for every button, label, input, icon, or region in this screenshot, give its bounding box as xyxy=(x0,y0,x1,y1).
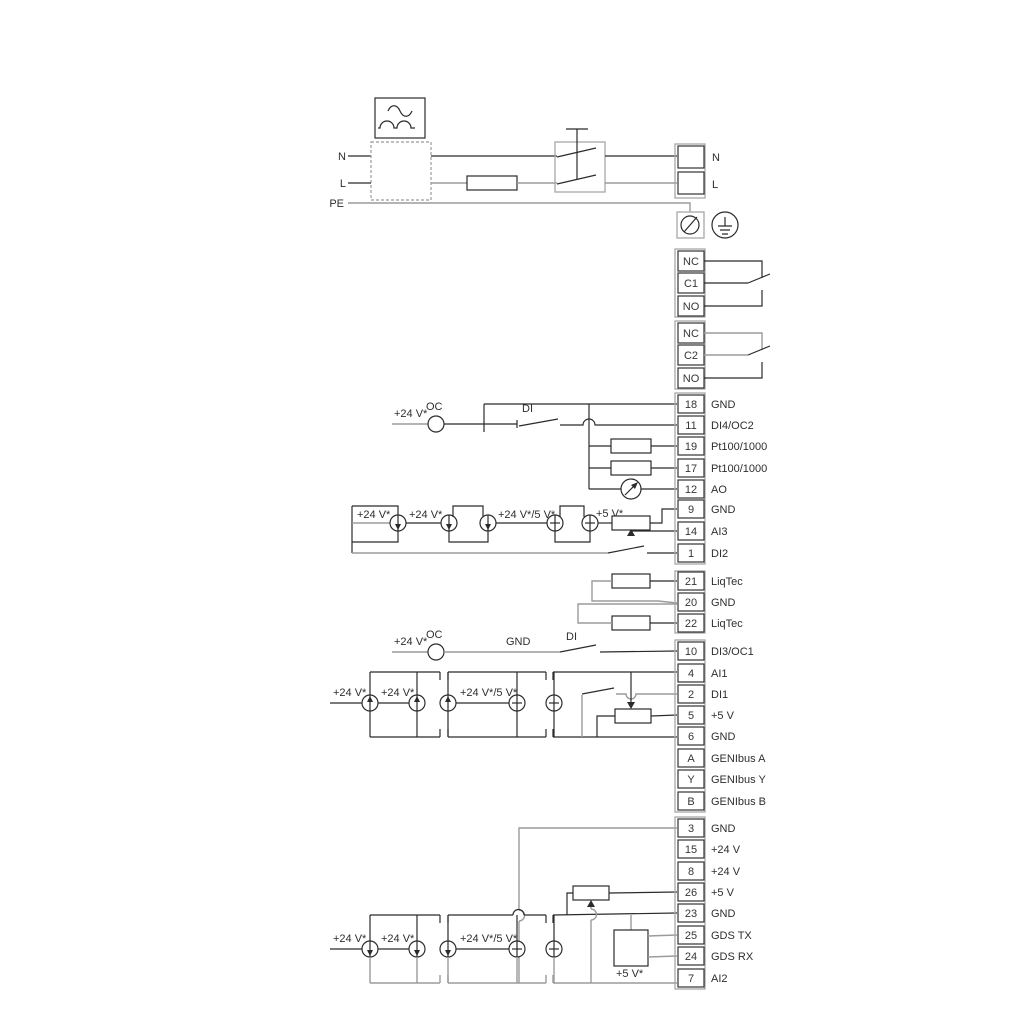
di3-switch-blade xyxy=(560,645,596,652)
terminal-number: 12 xyxy=(685,484,697,496)
current-source-down-icon xyxy=(441,515,457,531)
relay1-contact-blade xyxy=(748,274,770,283)
terminal-number: 22 xyxy=(685,618,697,630)
ai3-di2-circuit: +24 V* +24 V* +24 V*/5 V* +5 V* xyxy=(352,506,677,553)
terminal-row: 25GDS TX xyxy=(678,926,752,944)
current-source-down-icon xyxy=(440,941,456,957)
wiring-diagram-page: N L PE N L NC xyxy=(0,0,1024,1024)
terminal-row: 19Pt100/1000 xyxy=(678,437,767,455)
main-switch-box xyxy=(555,142,605,192)
l-left-label: L xyxy=(340,178,346,190)
terminal-label: AI3 xyxy=(711,526,728,538)
terminal-number: 1 xyxy=(688,548,694,560)
terminal-row: YGENIbus Y xyxy=(678,770,766,788)
return-loop xyxy=(449,531,488,542)
di4-pt100-ao-circuit: +24 V* OC DI xyxy=(392,401,677,499)
di1-switch-blade xyxy=(582,688,614,694)
terminal-number: 19 xyxy=(685,441,697,453)
terminal-row: 7AI2 xyxy=(678,969,728,987)
liqtec-circuit xyxy=(578,574,677,630)
terminal-label: +5 V xyxy=(711,710,735,722)
relay1-c1-label: C1 xyxy=(684,278,698,290)
wiper-wire-with-hop xyxy=(591,907,597,983)
oc-label: OC xyxy=(426,401,443,413)
oc-label: OC xyxy=(426,629,443,641)
terminal-l-cell xyxy=(678,172,704,194)
power-section: N L PE N L xyxy=(329,98,738,238)
terminal-number: 6 xyxy=(688,731,694,743)
liqtec-resistor-1 xyxy=(612,574,650,588)
wire-to-5v xyxy=(609,892,677,893)
terminal-label: GDS RX xyxy=(711,951,754,963)
v24-label: +24 V* xyxy=(394,636,428,648)
wire xyxy=(651,715,677,716)
relay2-section: NC C2 NO xyxy=(675,321,770,389)
v24-label: +24 V* xyxy=(381,933,415,945)
di4-wire-with-hop xyxy=(560,419,677,425)
pot-return-wire xyxy=(597,716,615,737)
terminal-label: GENIbus B xyxy=(711,796,766,808)
voltage-source-icon xyxy=(509,941,525,957)
terminal-row: 26+5 V xyxy=(678,883,735,901)
wiper-arrow-up xyxy=(587,900,595,907)
terminal-label: AI1 xyxy=(711,668,728,680)
mains-filter-box xyxy=(375,98,425,138)
terminal-row: 20GND xyxy=(678,593,736,611)
terminal-strips: 18GND 11DI4/OC2 19Pt100/1000 17Pt100/100… xyxy=(675,393,767,989)
bottom-stubs xyxy=(370,711,554,737)
terminal-label: Pt100/1000 xyxy=(711,463,767,475)
v24-v5-label: +24 V*/5 V* xyxy=(460,687,518,699)
terminal-label: GENIbus Y xyxy=(711,774,766,786)
pe-wire xyxy=(348,203,690,212)
gds-tx-wire xyxy=(648,935,677,936)
terminal-row: 6GND xyxy=(678,727,736,745)
di3-circuit: +24 V* OC GND DI xyxy=(392,629,677,660)
current-source-down-icon xyxy=(409,941,425,957)
terminal-row: 17Pt100/1000 xyxy=(678,459,767,477)
v24-label: +24 V* xyxy=(409,509,443,521)
terminal-row: 8+24 V xyxy=(678,862,741,880)
current-source-up-icon xyxy=(362,695,378,711)
terminal-number: 10 xyxy=(685,646,697,658)
terminal-label: GND xyxy=(711,399,736,411)
current-source-down-icon xyxy=(390,515,406,531)
relay1-no-wire xyxy=(704,290,762,306)
relay2-c2-label: C2 xyxy=(684,350,698,362)
gds-module-box xyxy=(614,930,648,966)
current-source-down-icon xyxy=(362,941,378,957)
terminal-row: 2DI1 xyxy=(678,685,728,703)
terminal-label: GND xyxy=(711,597,736,609)
di-label: DI xyxy=(566,631,577,643)
terminal-label: DI1 xyxy=(711,689,728,701)
terminal-label: AO xyxy=(711,484,727,496)
terminal-row: 11DI4/OC2 xyxy=(678,416,754,434)
gnd-bottom-rail xyxy=(370,729,677,737)
terminal-number: 3 xyxy=(688,823,694,835)
pt100-resistor-2 xyxy=(611,461,651,475)
terminal-label: GND xyxy=(711,823,736,835)
ai1-di1-circuit: +24 V* +24 V* +24 V*/5 V* xyxy=(330,672,677,737)
terminal-row: 24GDS RX xyxy=(678,947,754,965)
terminal-number: 15 xyxy=(685,844,697,856)
terminal-number: 7 xyxy=(688,973,694,985)
terminal-number: 21 xyxy=(685,576,697,588)
relay1-section: NC C1 NO xyxy=(675,249,770,317)
terminal-label: +5 V xyxy=(711,887,735,899)
terminal-number: 11 xyxy=(685,420,696,432)
n-left-label: N xyxy=(338,151,346,163)
terminal-row: BGENIbus B xyxy=(678,792,766,810)
voltage-source-icon xyxy=(547,515,563,531)
relay2-no-label: NO xyxy=(683,373,700,385)
current-source-up-icon xyxy=(440,695,456,711)
terminal-label: GENIbus A xyxy=(711,753,766,765)
terminal-label: LiqTec xyxy=(711,576,743,588)
terminal-number: 20 xyxy=(685,597,697,609)
terminal-number: A xyxy=(687,753,695,765)
v24-v5-label: +24 V*/5 V* xyxy=(498,509,556,521)
terminal-number: Y xyxy=(687,774,695,786)
terminal-row: 5+5 V xyxy=(678,706,735,724)
terminal-number: 2 xyxy=(688,689,694,701)
terminal-number: 24 xyxy=(685,951,697,963)
terminal-row: 23GND xyxy=(678,904,736,922)
potentiometer xyxy=(573,886,609,900)
dashed-module-box xyxy=(371,142,431,200)
terminal-row: 4AI1 xyxy=(678,664,728,682)
fuse xyxy=(467,176,517,190)
l-right-label: L xyxy=(712,179,718,191)
terminal-number: 26 xyxy=(685,887,697,899)
voltage-source-icon xyxy=(509,695,525,711)
liqtec-resistor-2 xyxy=(612,616,650,630)
voltage-source-icon xyxy=(546,941,562,957)
terminal-number: 23 xyxy=(685,908,697,920)
terminal-label: DI3/OC1 xyxy=(711,646,754,658)
relay1-nc-wire xyxy=(704,261,762,278)
relay2-contact-blade xyxy=(748,346,770,355)
terminal-label: GND xyxy=(711,731,736,743)
terminal-row: 3GND xyxy=(678,819,736,837)
terminal-label: GND xyxy=(711,504,736,516)
return-wire xyxy=(352,531,398,542)
relay1-nc-label: NC xyxy=(683,256,699,268)
v24-label: +24 V* xyxy=(333,933,367,945)
relay2-no-wire xyxy=(704,362,762,378)
wiper-arrow-down xyxy=(627,702,635,709)
relay2-nc-label: NC xyxy=(683,328,699,340)
current-source-down-icon xyxy=(480,515,496,531)
bracket xyxy=(453,506,483,517)
terminal-number: 14 xyxy=(685,526,697,538)
terminal-label: GDS TX xyxy=(711,930,752,942)
v24-label: +24 V* xyxy=(357,509,391,521)
terminal-n-cell xyxy=(678,146,704,168)
v24-label: +24 V* xyxy=(394,408,428,420)
terminal-label: +24 V xyxy=(711,866,741,878)
open-collector-icon xyxy=(428,644,444,660)
terminal-row: 15+24 V xyxy=(678,840,741,858)
terminal-number: 17 xyxy=(685,463,697,475)
gnd-label: GND xyxy=(506,636,531,648)
terminal-row: 14AI3 xyxy=(678,522,728,540)
terminal-label: DI4/OC2 xyxy=(711,420,754,432)
pe-left-label: PE xyxy=(329,198,344,210)
terminal-row: 12AO xyxy=(678,480,727,498)
terminal-row: 21LiqTec xyxy=(678,572,743,590)
v24-v5-label: +24 V*/5 V* xyxy=(460,933,518,945)
pot-return-wire xyxy=(567,893,573,915)
voltage-source-icon xyxy=(546,695,562,711)
pe-clamp-slash xyxy=(684,217,697,232)
terminal-number: 18 xyxy=(685,399,697,411)
terminal-label: Pt100/1000 xyxy=(711,441,767,453)
di-label: DI xyxy=(522,403,533,415)
di2-switch-blade xyxy=(608,546,644,553)
di1-wire-with-dip xyxy=(616,694,677,699)
terminal-number: 9 xyxy=(688,504,694,516)
terminal-row: 22LiqTec xyxy=(678,614,743,632)
current-source-up-icon xyxy=(409,695,425,711)
v24-label: +24 V* xyxy=(333,687,367,699)
v24-label: +24 V* xyxy=(381,687,415,699)
bottom-stubs xyxy=(370,957,554,983)
wiring-diagram: N L PE N L NC xyxy=(0,0,1024,1024)
terminal-label: AI2 xyxy=(711,973,728,985)
terminal-row: 1DI2 xyxy=(678,544,728,562)
terminal-row: AGENIbus A xyxy=(678,749,766,767)
terminal-number: 25 xyxy=(685,930,697,942)
terminal-row: 18GND xyxy=(678,395,736,413)
potentiometer xyxy=(612,516,650,530)
relay1-no-label: NO xyxy=(683,301,700,313)
pt100-resistor-1 xyxy=(611,439,651,453)
open-collector-icon xyxy=(428,416,444,432)
terminal-label: +24 V xyxy=(711,844,741,856)
terminal-number: B xyxy=(687,796,694,808)
bottom-circuit: +24 V* +24 V* +24 V*/5 V* xyxy=(330,828,677,983)
terminal-number: 4 xyxy=(688,668,694,680)
terminal-label: LiqTec xyxy=(711,618,743,630)
v5-label: +5 V* xyxy=(616,968,644,980)
relay2-nc-wire xyxy=(704,333,762,350)
potentiometer xyxy=(615,709,651,723)
terminal-number: 5 xyxy=(688,710,694,722)
terminal-row: 10DI3/OC1 xyxy=(678,642,754,660)
return-loop xyxy=(555,531,590,542)
di3-wire xyxy=(600,651,677,652)
terminal-number: 8 xyxy=(688,866,694,878)
gnd9-wire xyxy=(650,509,677,523)
bracket xyxy=(560,506,584,517)
earth-glyph xyxy=(718,217,732,234)
n-right-label: N xyxy=(712,152,720,164)
terminal-row: 9GND xyxy=(678,500,736,518)
di4-switch-blade xyxy=(519,419,558,426)
gnd3-long-wire xyxy=(519,828,677,983)
gds-rx-wire xyxy=(648,956,677,957)
terminal-label: DI2 xyxy=(711,548,728,560)
terminal-label: GND xyxy=(711,908,736,920)
